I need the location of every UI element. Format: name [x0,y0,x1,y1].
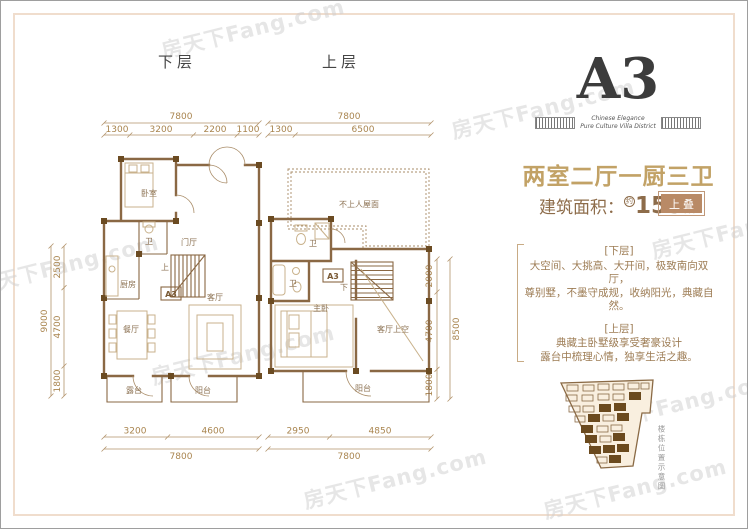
dim-label: 7800 [338,452,361,462]
ornament-right [661,117,701,129]
room-label-terrace: 露台 [126,385,142,395]
unit-label: A3 [327,272,339,281]
tagline-line1: Chinese Elegance [580,115,656,123]
dimension-lines-bottom: 3200 4600 7800 [102,427,262,463]
dim-label: 2500 [53,255,63,278]
dim-label: 1800 [53,369,63,392]
dim-label: 6500 [352,125,375,135]
floorplan-page: 房天下Fang.com 房天下Fang.com 房天下Fang.com 房天下F… [0,0,748,529]
room-label-kitchen: 厨房 [120,279,136,289]
dimension-lines-bottom: 2950 4850 7800 [266,427,434,463]
room-label-bath1: 卫 [309,239,317,248]
dim-label: 7800 [170,452,193,462]
desc-lower-line1: 大空间、大挑高、大开间，极致南向双厅， [521,260,717,287]
dim-label: 7800 [170,112,193,122]
dim-label: 1300 [270,125,293,135]
dim-label: 8500 [452,317,462,340]
unit-name-title: A3 [538,51,698,107]
dim-label: 7800 [338,112,361,122]
area-label: 建筑面积： [539,198,624,218]
dim-label: 3200 [150,125,173,135]
area-approx-mark: 约 [624,196,635,207]
room-label-bath: 卫 [145,237,153,246]
tagline: Chinese Elegance Pure Culture Villa Dist… [580,115,656,131]
floorplan-lower: 7800 1300 3200 2200 1100 9000 2500 4700 … [37,99,265,461]
dim-label: 2200 [204,125,227,135]
room-label-bath2: 卫 [289,279,297,288]
room-label-foyer: 门厅 [181,237,197,247]
room-label-master: 主卧 [313,303,329,313]
siteplan-caption: 楼栋位置示意图 [656,425,667,492]
stairs-up-label: 上 [161,263,169,272]
stairs-down-label: 下 [340,283,348,292]
furniture [106,163,241,369]
dim-label: 2950 [287,427,310,437]
tagline-line2: Pure Culture Villa District [580,123,656,131]
siteplan [541,369,671,481]
dimension-lines-right: 2000 4700 1800 8500 [425,257,462,402]
layout-title: 两室二厅一厨三卫 [501,157,736,191]
description-block: [下层] 大空间、大挑高、大开间，极致南向双厅， 尊别墅，不墨守成规，收纳阳光，… [521,245,717,364]
desc-lower-title: [下层] [521,245,717,259]
room-label-living: 客厅 [207,292,223,302]
room-label-roof: 不上人屋面 [339,200,379,209]
dim-label: 1800 [425,373,435,396]
lower-floor-title: 下层 [141,51,213,72]
dim-label: 4850 [369,427,392,437]
room-label-bedroom: 卧室 [141,188,157,198]
room-label-void: 客厅上空 [377,324,409,334]
dimension-lines-top: 7800 1300 3200 2200 1100 [102,112,262,138]
floorplan-upper: 7800 1300 6500 2000 4700 1800 8500 [251,99,479,461]
room-label-balcony: 阳台 [195,385,211,395]
dimension-lines-top: 7800 1300 6500 [266,112,434,138]
dimension-lines-left: 9000 2500 4700 1800 [40,244,67,399]
desc-upper-line2: 露台中梳理心情，独享生活之趣。 [521,351,717,365]
desc-lower-line2: 尊别墅，不墨守成规，收纳阳光，典藏自然。 [521,287,717,314]
badge-text: 上叠 [661,194,702,213]
unit-label: A3 [165,290,177,299]
dim-label: 4700 [53,315,63,338]
upper-duplex-badge: 上叠 [658,191,705,216]
dim-label: 4600 [202,427,225,437]
ornament-left [535,117,575,129]
title-ornament-row: Chinese Elegance Pure Culture Villa Dist… [534,115,702,131]
walls [104,147,259,402]
columns [268,216,432,374]
dim-label: 1300 [106,125,129,135]
room-label-dining: 餐厅 [123,325,139,334]
upper-floor-title: 上层 [305,51,377,72]
roof-outline [288,169,429,249]
room-label-balcony: 阳台 [355,383,371,393]
dim-label: 9000 [40,309,50,332]
desc-upper-title: [上层] [521,323,717,337]
dim-label: 3200 [124,427,147,437]
desc-upper-line1: 典藏主卧墅级享受奢豪设计 [521,337,717,351]
